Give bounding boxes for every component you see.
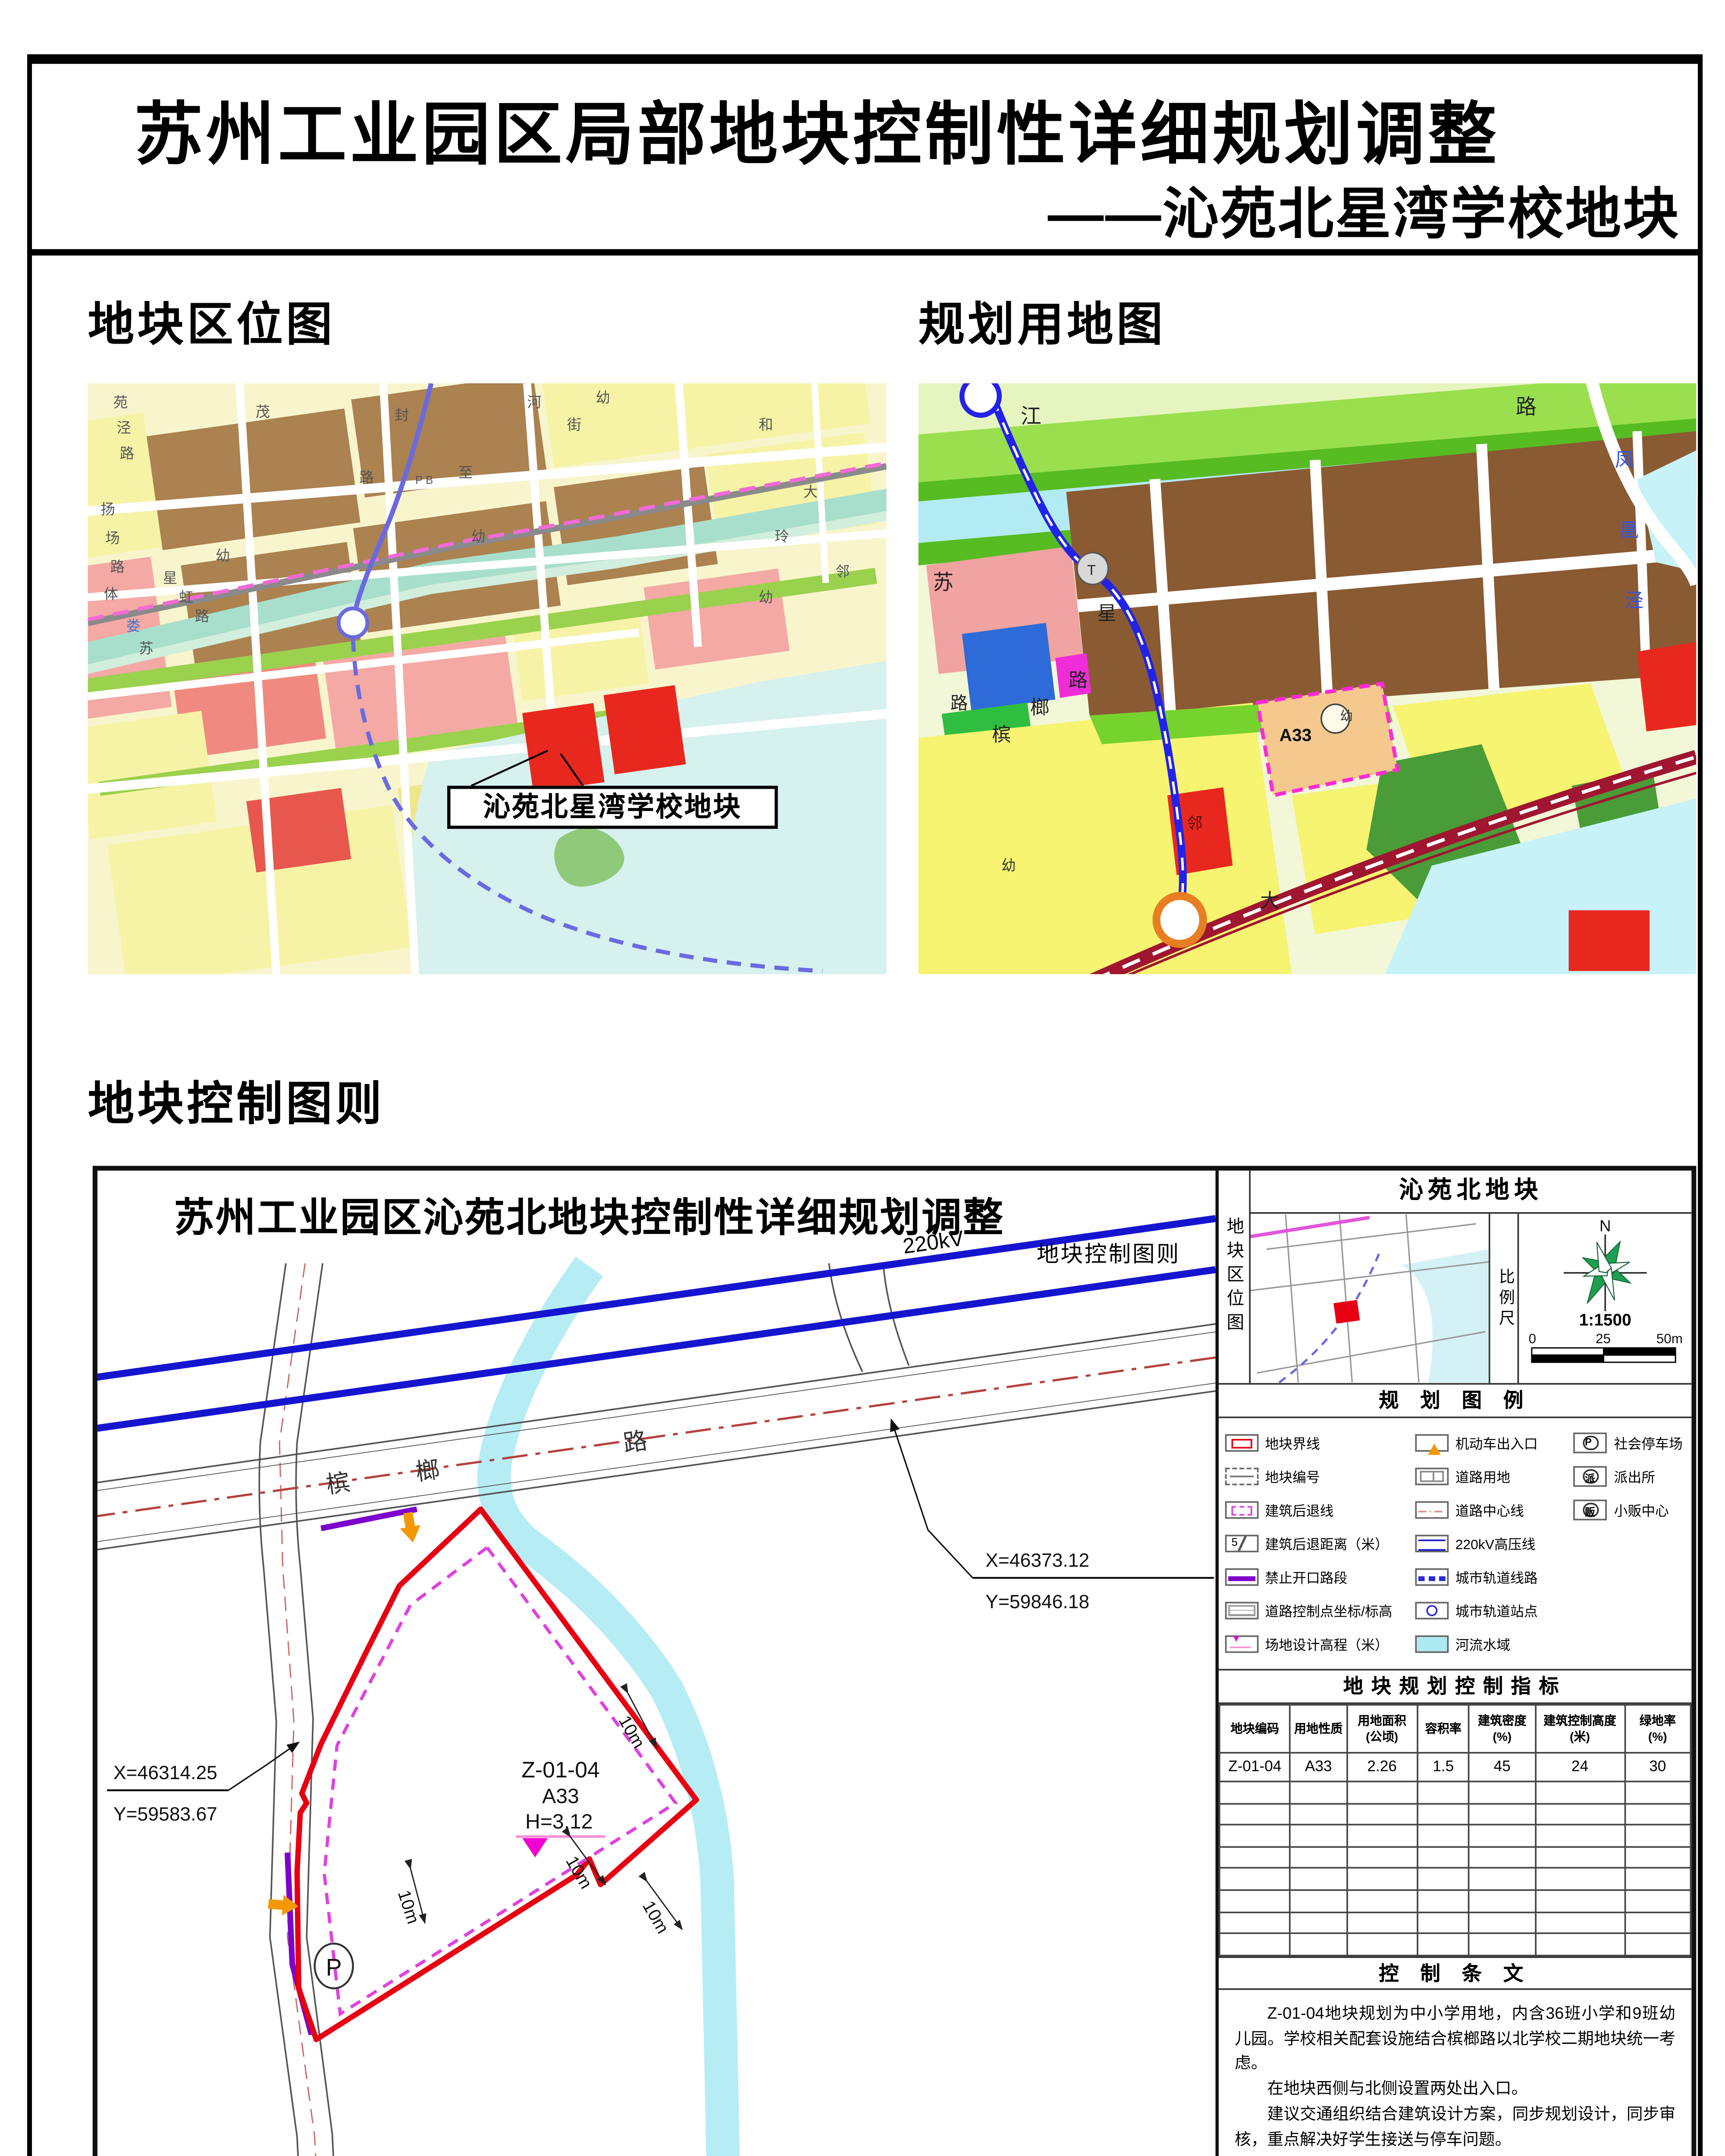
road-centerline-icon bbox=[1415, 1501, 1449, 1519]
police-station-icon: 派 bbox=[1574, 1466, 1608, 1487]
vehicle-entrance-icon bbox=[1415, 1434, 1449, 1452]
plan-drawing: 220kV 槟 榔 路 Z-01-04 A33 H=3.12 bbox=[97, 1171, 1216, 2156]
table-empty-row bbox=[1220, 1912, 1691, 1934]
table-empty-row bbox=[1220, 1825, 1691, 1846]
scale-tick: 25 bbox=[1596, 1331, 1611, 1346]
station-t-label: T bbox=[1087, 562, 1096, 578]
map-label: 幼 bbox=[216, 549, 230, 564]
provision-paragraph: 建议交通组织结合建筑设计方案，同步规划设计，同步审核，重点解决好学生接送与停车问… bbox=[1235, 2103, 1675, 2154]
section-label-control-chart: 地块控制图则 bbox=[88, 1067, 385, 1134]
map-label: 星 bbox=[163, 572, 177, 586]
panel-scale-label: 比例尺 bbox=[1490, 1214, 1519, 1383]
coord-sw-y: Y=59583.67 bbox=[113, 1804, 217, 1825]
provisions-title: 控 制 条 文 bbox=[1219, 1956, 1691, 1990]
minimap-plot bbox=[1333, 1300, 1360, 1324]
table-empty-row bbox=[1220, 1781, 1691, 1803]
map-label: A33 bbox=[1280, 728, 1312, 746]
map-label: 邻 bbox=[1187, 818, 1203, 834]
landuse-map: T 江路凤凰泾苏星槟榔路A33幼邻幼大路 bbox=[919, 383, 1697, 974]
title-block: 苏州工业园区局部地块控制性详细规划调整 ——沁苑北星湾学校地块 bbox=[27, 54, 1703, 256]
map-label: 泾 bbox=[1625, 591, 1644, 610]
legend-item: 地块界线 bbox=[1225, 1426, 1415, 1460]
legend-item: 220kV高压线 bbox=[1415, 1527, 1574, 1561]
map-label: 街 bbox=[567, 418, 581, 432]
legend-item: 河流水域 bbox=[1415, 1627, 1574, 1661]
map-label: 大 bbox=[803, 486, 818, 500]
scale-tick: 50m bbox=[1656, 1331, 1683, 1346]
provision-paragraph: 地块停车配置参照苏州工业园区相关规定；同时在地块内配套建设50个车位规模的社会停… bbox=[1235, 2154, 1675, 2156]
legend-item: 城市轨道线路 bbox=[1415, 1561, 1574, 1594]
legend: 地块界线 地块编号 建筑后退线 5建筑后退距离（米） 禁止开口路段 道路控制点坐… bbox=[1219, 1418, 1691, 1670]
section-label-landuse-map: 规划用地图 bbox=[919, 288, 1166, 355]
map-label: 茂 bbox=[256, 406, 270, 420]
site-elevation-icon bbox=[1225, 1636, 1259, 1653]
map-label: 路 bbox=[1516, 396, 1537, 417]
map-label: 槟 bbox=[992, 725, 1011, 744]
map-label: 幼 bbox=[596, 391, 610, 405]
map-label: 幼 bbox=[471, 530, 486, 545]
drawing-subtitle: 地块控制图则 bbox=[1037, 1238, 1180, 1269]
map-label: 江 bbox=[1021, 406, 1041, 426]
plot-number-icon bbox=[1225, 1468, 1259, 1485]
table-empty-row bbox=[1220, 1847, 1691, 1868]
power-line-icon bbox=[1415, 1535, 1449, 1552]
road-name-char: 榔 bbox=[414, 1456, 442, 1485]
map-label: 虹 bbox=[179, 591, 193, 605]
map-label: 大 bbox=[1260, 891, 1280, 910]
page-subtitle: ——沁苑北星湾学校地块 bbox=[1048, 169, 1681, 251]
road-name-char: 路 bbox=[621, 1427, 649, 1457]
scale-ratio: 1:1500 bbox=[1579, 1311, 1631, 1330]
legend-title: 规 划 图 例 bbox=[1219, 1385, 1691, 1418]
coord-ne-x: X=46373.12 bbox=[985, 1550, 1089, 1571]
compass-rose: N bbox=[1543, 1216, 1668, 1315]
river-water-icon bbox=[1415, 1636, 1449, 1653]
scale-tick: 0 bbox=[1528, 1331, 1536, 1346]
legend-item: 5建筑后退距离（米） bbox=[1225, 1527, 1415, 1561]
legend-item: 场地设计高程（米） bbox=[1225, 1627, 1415, 1661]
table-empty-row bbox=[1220, 1934, 1691, 1955]
public-parking-icon: P bbox=[1574, 1432, 1608, 1453]
coord-ne-y: Y=59846.18 bbox=[985, 1592, 1089, 1613]
map-label: 娄 bbox=[126, 620, 141, 634]
map-label: 苏 bbox=[139, 642, 153, 656]
map-label: 玲 bbox=[775, 530, 789, 545]
map-label: 苑 bbox=[113, 396, 128, 411]
map-label: 路 bbox=[359, 471, 373, 486]
indicators-table: 地块编码 用地性质 用地面积 (公顷) 容积率 建筑密度 (%) 建筑控制高度 … bbox=[1219, 1704, 1691, 1956]
map-label: 凤 bbox=[1615, 450, 1634, 469]
location-callout: 沁苑北星湾学校地块 bbox=[447, 786, 778, 829]
table-empty-row bbox=[1220, 1868, 1691, 1890]
map-label: 体 bbox=[104, 588, 118, 602]
setback-distance-icon: 5 bbox=[1225, 1535, 1259, 1552]
table-header-row: 地块编码 用地性质 用地面积 (公顷) 容积率 建筑密度 (%) 建筑控制高度 … bbox=[1220, 1705, 1691, 1753]
section-label-location-map: 地块区位图 bbox=[88, 288, 336, 355]
provision-paragraph: 在地块西侧与北侧设置两处出入口。 bbox=[1235, 2078, 1675, 2103]
panel-area-title: 沁苑北地块 bbox=[1251, 1171, 1691, 1214]
legend-item: 建筑后退线 bbox=[1225, 1493, 1415, 1527]
legend-item: 道路用地 bbox=[1415, 1460, 1574, 1493]
road-control-point-icon bbox=[1225, 1602, 1259, 1620]
setback-line-icon bbox=[1225, 1501, 1259, 1519]
map-label: 星 bbox=[1097, 604, 1117, 623]
legend-item: 禁止开口路段 bbox=[1225, 1561, 1415, 1594]
no-access-segment-icon bbox=[1225, 1568, 1259, 1586]
map-label: 幼 bbox=[1001, 859, 1016, 874]
drawing-title: 苏州工业园区沁苑北地块控制性详细规划调整 bbox=[174, 1187, 1005, 1244]
map-label: 路 bbox=[1069, 671, 1088, 690]
north-label: N bbox=[1600, 1217, 1611, 1235]
legend-item: P社会停车场 bbox=[1574, 1426, 1688, 1460]
map-label: 路 bbox=[120, 447, 134, 461]
map-label: 河 bbox=[527, 396, 541, 411]
planning-bulletin-page: 苏州工业园区局部地块控制性详细规划调整 ——沁苑北星湾学校地块 地块区位图 规划… bbox=[0, 0, 1725, 2156]
panel-strip-label: 地块区位图 bbox=[1219, 1171, 1251, 1383]
landuse-map-graphic: T bbox=[919, 383, 1697, 974]
map-label: 和 bbox=[759, 418, 773, 432]
location-map-graphic bbox=[88, 383, 887, 974]
plot-boundary-icon bbox=[1225, 1434, 1259, 1452]
map-label: 至 bbox=[458, 466, 473, 480]
panel-minimap bbox=[1251, 1214, 1490, 1383]
legend-item: 机动车出入口 bbox=[1415, 1426, 1574, 1460]
road-land-icon bbox=[1415, 1468, 1449, 1485]
map-label: 封 bbox=[395, 409, 409, 423]
map-label: 场 bbox=[105, 532, 119, 546]
map-label: 路 bbox=[195, 610, 209, 624]
location-map: 沁苑北星湾学校地块 苑泾路茂封河街幼和至路大P B扬场路玲邻幼幼幼体娄星虹路苏 bbox=[88, 383, 887, 974]
indicators-title: 地块规划控制指标 bbox=[1219, 1670, 1691, 1704]
page-title: 苏州工业园区局部地块控制性详细规划调整 bbox=[27, 80, 1607, 179]
map-label: 邻 bbox=[835, 565, 850, 580]
plot-use: A33 bbox=[542, 1784, 579, 1808]
legend-item: 城市轨道站点 bbox=[1415, 1594, 1574, 1627]
map-label: 路 bbox=[950, 696, 968, 714]
metro-station-icon bbox=[1415, 1602, 1449, 1620]
metro-line-icon bbox=[1415, 1568, 1449, 1586]
map-label: 泾 bbox=[116, 422, 131, 436]
legend-item: 贩小贩中心 bbox=[1574, 1493, 1688, 1527]
table-empty-row bbox=[1220, 1803, 1691, 1825]
provision-paragraph: Z-01-04地块规划为中小学用地，内含36班小学和9班幼儿园。学校相关配套设施… bbox=[1235, 2002, 1675, 2078]
table-row: Z-01-04 A33 2.26 1.5 45 24 30 bbox=[1220, 1753, 1691, 1782]
map-label: 凰 bbox=[1620, 520, 1639, 539]
map-label: 幼 bbox=[759, 591, 773, 605]
coord-sw-x: X=46314.25 bbox=[113, 1762, 217, 1783]
map-label: 幼 bbox=[1340, 711, 1353, 724]
map-label: 苏 bbox=[933, 572, 953, 592]
plot-code: Z-01-04 bbox=[521, 1757, 600, 1782]
legend-item: 地块编号 bbox=[1225, 1460, 1415, 1493]
legend-item: 道路控制点坐标/标高 bbox=[1225, 1594, 1415, 1627]
legend-item: 道路中心线 bbox=[1415, 1493, 1574, 1527]
parking-symbol: P bbox=[326, 1954, 342, 1981]
map-label: 榔 bbox=[1030, 698, 1050, 717]
scale-bar: 0 25 50m bbox=[1522, 1330, 1688, 1369]
road-name-char: 槟 bbox=[324, 1469, 352, 1498]
hawker-center-icon: 贩 bbox=[1574, 1500, 1608, 1520]
info-panel: 地块区位图 沁苑北地块 bbox=[1216, 1171, 1692, 2156]
map-label: P B bbox=[415, 476, 433, 487]
provisions-text: Z-01-04地块规划为中小学用地，内含36班小学和9班幼儿园。学校相关配套设施… bbox=[1219, 1990, 1691, 2156]
legend-item: 派派出所 bbox=[1574, 1460, 1688, 1493]
table-empty-row bbox=[1220, 1890, 1691, 1912]
plot-elevation: H=3.12 bbox=[525, 1810, 593, 1833]
map-label: 扬 bbox=[100, 503, 115, 517]
control-chart-sheet: 220kV 槟 榔 路 Z-01-04 A33 H=3.12 bbox=[93, 1166, 1697, 2156]
map-label: 路 bbox=[110, 561, 125, 575]
